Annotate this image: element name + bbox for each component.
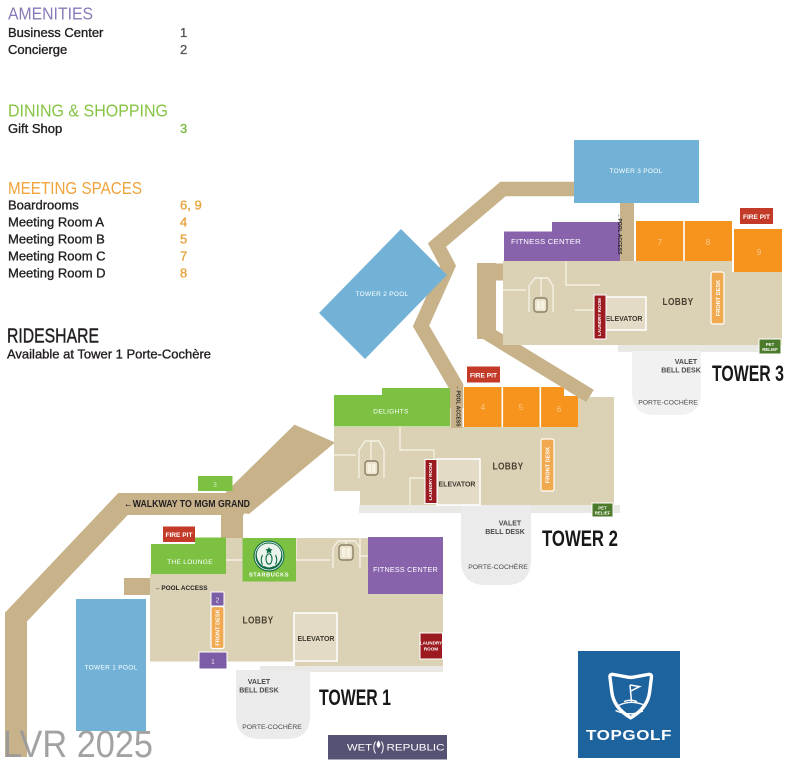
svg-text:THE LOUNGE: THE LOUNGE xyxy=(167,559,213,566)
svg-text:RIDESHARE: RIDESHARE xyxy=(7,326,99,348)
svg-text:RELIEF: RELIEF xyxy=(762,347,778,352)
svg-text:Boardrooms: Boardrooms xyxy=(8,198,79,213)
svg-text:←WALKWAY TO MGM GRAND: ←WALKWAY TO MGM GRAND xyxy=(124,498,250,510)
svg-text:VALET: VALET xyxy=(499,521,522,528)
svg-text:Gift Shop: Gift Shop xyxy=(8,121,62,136)
svg-text:PORTE-COCHÈRE: PORTE-COCHÈRE xyxy=(242,722,302,731)
svg-text:Concierge: Concierge xyxy=(8,42,67,57)
svg-text:MEETING SPACES: MEETING SPACES xyxy=(8,178,142,198)
svg-text:AMENITIES: AMENITIES xyxy=(8,4,93,24)
svg-text:LAUNDRY ROOM: LAUNDRY ROOM xyxy=(428,462,433,500)
svg-text:WET: WET xyxy=(347,743,372,754)
svg-text:8: 8 xyxy=(180,266,187,281)
svg-text:Business Center: Business Center xyxy=(8,25,104,40)
svg-text:LVR 2025: LVR 2025 xyxy=(3,724,153,766)
svg-text:Meeting Room B: Meeting Room B xyxy=(8,232,105,247)
svg-text:DINING & SHOPPING: DINING & SHOPPING xyxy=(8,101,168,121)
svg-text:8: 8 xyxy=(706,238,711,247)
svg-text:VALET: VALET xyxy=(248,679,271,686)
svg-text:BELL DESK: BELL DESK xyxy=(661,368,701,375)
svg-text:REPUBLIC: REPUBLIC xyxy=(387,743,445,754)
svg-text:TOWER 3 POOL: TOWER 3 POOL xyxy=(610,168,663,175)
svg-text:←POOL ACCESS: ←POOL ACCESS xyxy=(616,213,622,255)
svg-text:7: 7 xyxy=(658,238,663,247)
svg-text:BELL DESK: BELL DESK xyxy=(239,688,279,695)
svg-text:LOBBY: LOBBY xyxy=(243,616,274,627)
svg-text:2: 2 xyxy=(180,42,187,57)
svg-text:PORTE-COCHÈRE: PORTE-COCHÈRE xyxy=(468,562,528,571)
svg-text:5: 5 xyxy=(519,403,524,412)
svg-text:FIRE PIT: FIRE PIT xyxy=(470,373,497,380)
svg-text:7: 7 xyxy=(180,249,187,264)
svg-text:FIRE PIT: FIRE PIT xyxy=(743,214,770,221)
svg-text:ELEVATOR: ELEVATOR xyxy=(298,636,335,643)
svg-text:Meeting Room D: Meeting Room D xyxy=(8,266,106,281)
svg-text:ROOM: ROOM xyxy=(424,647,438,652)
svg-text:TOWER 1: TOWER 1 xyxy=(319,685,391,710)
svg-text:LOBBY: LOBBY xyxy=(663,297,694,308)
svg-text:←POOL ACCESS: ←POOL ACCESS xyxy=(155,585,208,592)
svg-text:Meeting Room C: Meeting Room C xyxy=(8,249,106,264)
svg-text:FRONT DESK: FRONT DESK xyxy=(716,280,722,316)
svg-text:FITNESS CENTER: FITNESS CENTER xyxy=(511,237,581,246)
svg-text:FITNESS CENTER: FITNESS CENTER xyxy=(373,565,438,574)
svg-text:PORTE-COCHÈRE: PORTE-COCHÈRE xyxy=(638,398,698,407)
svg-text:ELEVATOR: ELEVATOR xyxy=(606,316,643,323)
svg-text:1: 1 xyxy=(180,25,187,40)
svg-text:VALET: VALET xyxy=(675,359,698,366)
svg-text:3: 3 xyxy=(180,121,187,136)
svg-text:RELIEF: RELIEF xyxy=(595,511,611,516)
svg-text:TOWER 3: TOWER 3 xyxy=(712,361,784,386)
svg-text:6, 9: 6, 9 xyxy=(180,198,202,213)
svg-text:6: 6 xyxy=(557,405,562,414)
svg-text:4: 4 xyxy=(481,403,486,412)
svg-text:2: 2 xyxy=(216,598,220,605)
svg-text:Available at Tower 1 Porte-Coc: Available at Tower 1 Porte-Cochère xyxy=(7,347,211,362)
svg-text:LOBBY: LOBBY xyxy=(493,462,524,473)
svg-text:Meeting Room A: Meeting Room A xyxy=(8,215,104,230)
svg-text:ELEVATOR: ELEVATOR xyxy=(439,482,476,489)
svg-text:FRONT DESK: FRONT DESK xyxy=(546,447,552,483)
svg-text:TOWER 2: TOWER 2 xyxy=(542,526,618,551)
svg-text:TOWER 1 POOL: TOWER 1 POOL xyxy=(85,665,138,672)
svg-text:3: 3 xyxy=(213,482,217,489)
svg-text:FIRE PIT: FIRE PIT xyxy=(165,532,192,539)
svg-text:STARBUCKS: STARBUCKS xyxy=(249,573,289,579)
svg-text:BELL DESK: BELL DESK xyxy=(485,529,525,536)
svg-text:1: 1 xyxy=(211,659,215,666)
svg-text:LAUNDRY: LAUNDRY xyxy=(420,641,442,646)
svg-text:TOWER 2 POOL: TOWER 2 POOL xyxy=(356,291,409,298)
svg-text:LAUNDRY ROOM: LAUNDRY ROOM xyxy=(597,298,602,336)
svg-text:FRONT DESK: FRONT DESK xyxy=(216,609,222,645)
svg-text:4: 4 xyxy=(180,215,187,230)
svg-text:←POOL ACCESS: ←POOL ACCESS xyxy=(455,385,461,427)
svg-text:9: 9 xyxy=(757,248,762,257)
svg-text:TOPGOLF: TOPGOLF xyxy=(586,728,672,744)
svg-text:DELIGHTS: DELIGHTS xyxy=(373,409,409,416)
svg-text:5: 5 xyxy=(180,232,187,247)
